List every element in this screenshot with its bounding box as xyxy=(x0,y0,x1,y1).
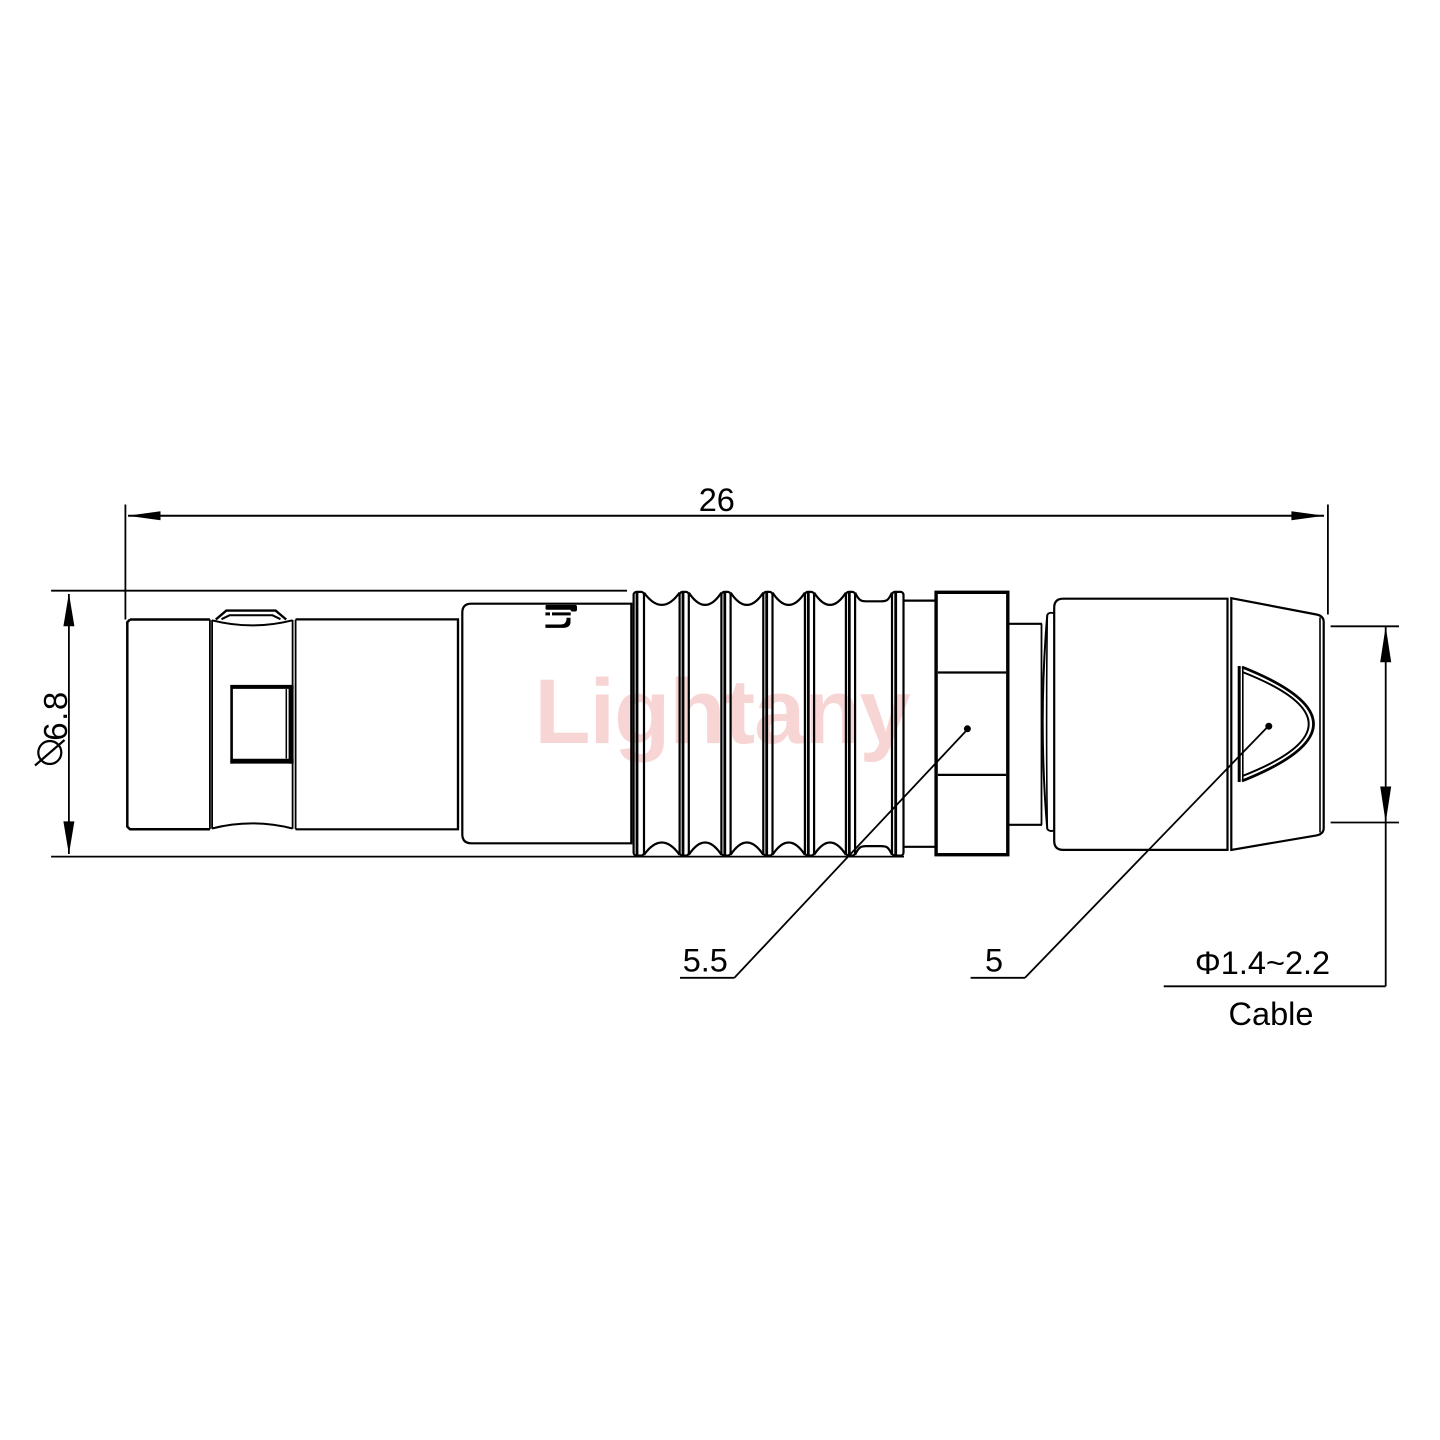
svg-text:5: 5 xyxy=(985,943,1003,979)
svg-text:6.8: 6.8 xyxy=(37,690,74,740)
svg-text:Cable: Cable xyxy=(1229,996,1314,1032)
svg-text:Φ1.4~2.2: Φ1.4~2.2 xyxy=(1195,945,1330,981)
svg-text:26: 26 xyxy=(699,482,735,518)
svg-text:5.5: 5.5 xyxy=(683,943,728,979)
